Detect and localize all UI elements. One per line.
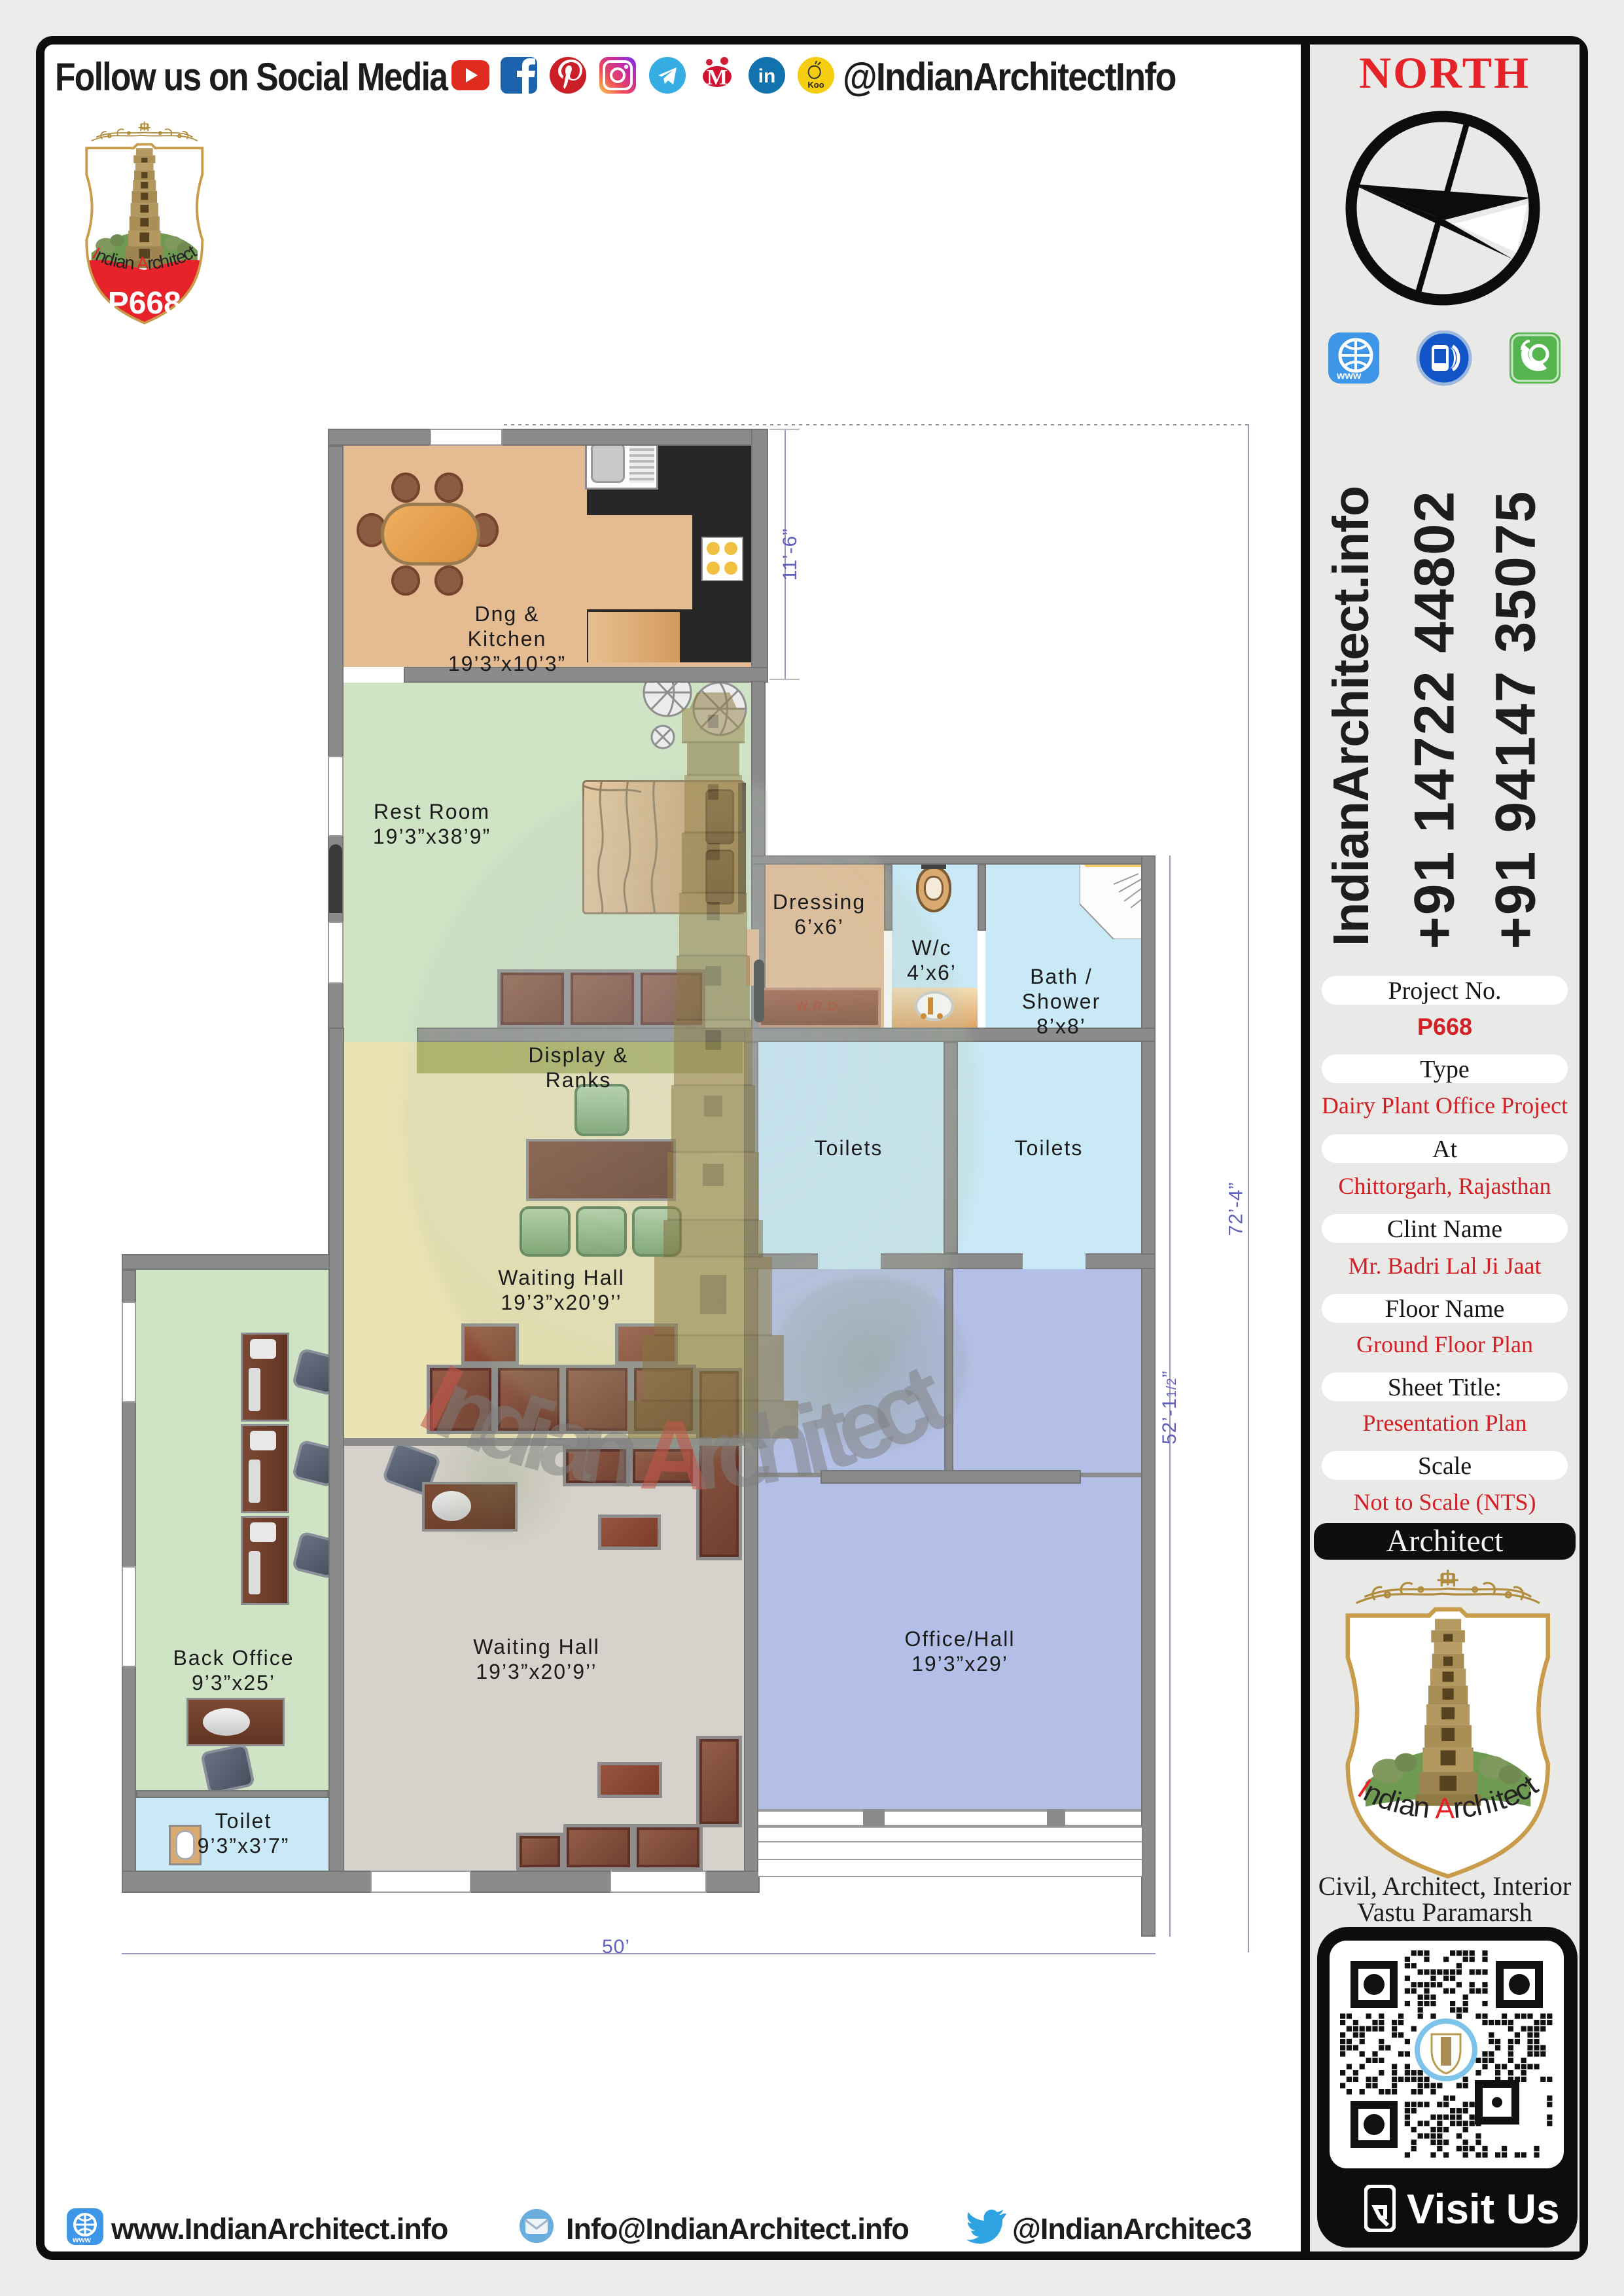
svg-text:www: www [1336, 370, 1362, 382]
svg-text:www: www [72, 2235, 92, 2244]
